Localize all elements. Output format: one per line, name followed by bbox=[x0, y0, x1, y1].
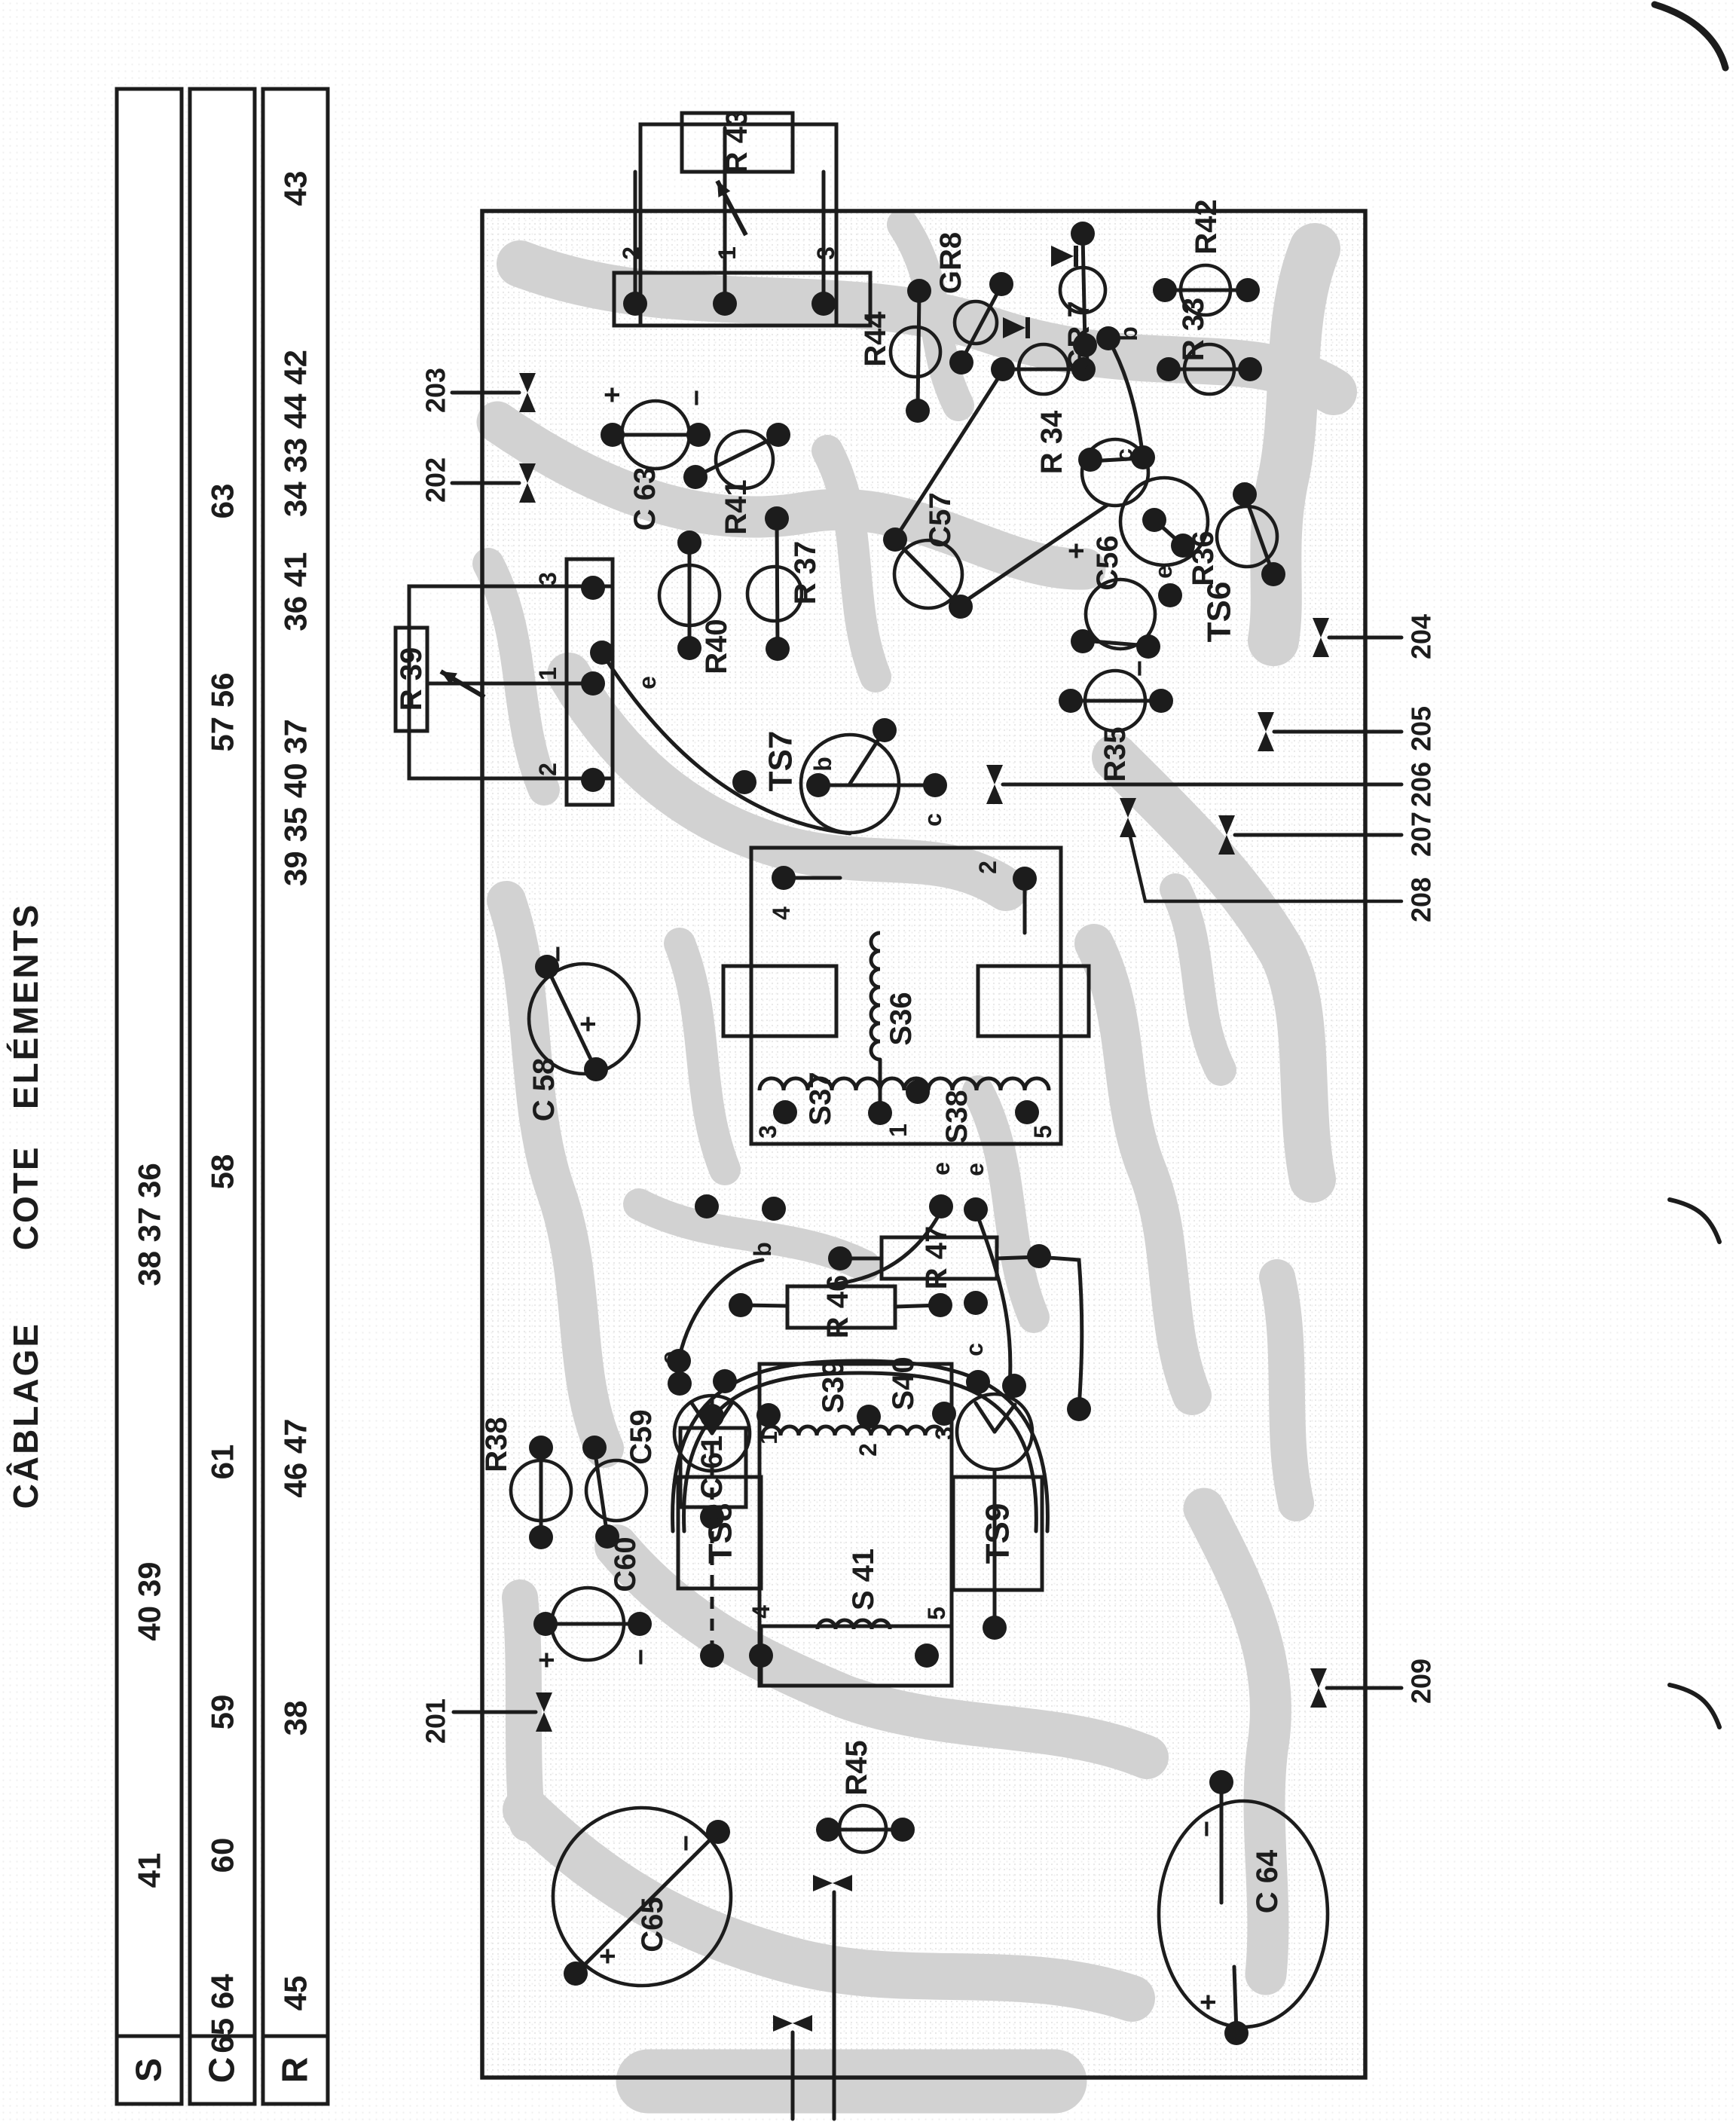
label-+-83: + bbox=[1193, 1994, 1224, 2010]
legend-C-entry-4: 59 bbox=[205, 1695, 240, 1730]
label-R41-20: R41 bbox=[720, 479, 753, 534]
label-TS7-24: TS7 bbox=[763, 731, 799, 792]
pad-19 bbox=[732, 770, 756, 794]
label-GR8-29: GR8 bbox=[934, 232, 967, 294]
pad-55 bbox=[929, 1194, 953, 1218]
label-+-78: + bbox=[592, 1948, 624, 1965]
label-4-46: 4 bbox=[768, 907, 795, 920]
curve-wire-10 bbox=[1670, 1200, 1719, 1242]
label-R36-38: R36 bbox=[1187, 530, 1220, 586]
pad-70 bbox=[749, 1643, 773, 1668]
label-b-25: b bbox=[809, 757, 836, 772]
label-202-9: 202 bbox=[420, 457, 451, 503]
pad-64 bbox=[668, 1371, 692, 1396]
label-R39-4: R 39 bbox=[395, 647, 428, 711]
pad-8 bbox=[766, 423, 790, 447]
label-S36-48: S36 bbox=[885, 992, 918, 1045]
label-3-3: 3 bbox=[812, 246, 839, 260]
pad-24 bbox=[949, 350, 973, 375]
label-204-11: 204 bbox=[1406, 614, 1437, 659]
label-c-35: c bbox=[1111, 448, 1138, 462]
pad-78 bbox=[529, 1525, 553, 1549]
label-3-51: 3 bbox=[754, 1125, 781, 1139]
label-C58-43: C 58 bbox=[527, 1058, 561, 1122]
label-R44-28: R44 bbox=[859, 311, 892, 367]
pad-57 bbox=[729, 1293, 753, 1317]
pad-71 bbox=[915, 1643, 939, 1668]
label-R46-59: R 46 bbox=[821, 1275, 854, 1339]
label-−-82: − bbox=[1191, 1821, 1223, 1837]
pad-67 bbox=[1002, 1374, 1026, 1398]
pad-10 bbox=[677, 530, 701, 555]
pad-65 bbox=[713, 1369, 737, 1393]
pad-83 bbox=[706, 1820, 730, 1844]
label-b-34: b bbox=[1115, 326, 1142, 341]
wire-14 bbox=[918, 292, 919, 408]
label-GR7-30: GR 7 bbox=[1062, 301, 1096, 371]
label-C59-63: C59 bbox=[625, 1409, 658, 1464]
pad-42 bbox=[1136, 634, 1160, 659]
pad-17 bbox=[923, 773, 947, 797]
label-209-16: 209 bbox=[1406, 1659, 1437, 1704]
pad-4 bbox=[581, 671, 605, 696]
label-−-19: − bbox=[681, 390, 713, 406]
pad-13 bbox=[766, 637, 790, 661]
pad-11 bbox=[677, 636, 701, 660]
label-R33-32: R 33 bbox=[1177, 298, 1210, 362]
pad-28 bbox=[1236, 278, 1260, 302]
pad-82 bbox=[628, 1612, 652, 1636]
pad-12 bbox=[765, 506, 789, 530]
label-e-27: e bbox=[634, 676, 661, 689]
label-3-71: 3 bbox=[931, 1426, 958, 1440]
label-−-45: − bbox=[542, 946, 574, 962]
label-e-55: e bbox=[656, 1351, 683, 1365]
pad-79 bbox=[582, 1436, 607, 1460]
pad-48 bbox=[1013, 867, 1037, 891]
legend-R-entry-1: 34 33 44 42 bbox=[278, 350, 313, 517]
pad-37 bbox=[1158, 583, 1182, 607]
label-+-44: + bbox=[573, 1016, 604, 1032]
label-R34-33: R 34 bbox=[1035, 410, 1068, 474]
label-S40-68: S40 bbox=[887, 1356, 920, 1410]
label-S37-49: S37 bbox=[804, 1072, 837, 1125]
pad-16 bbox=[806, 773, 830, 797]
label-e-56: e bbox=[928, 1162, 955, 1176]
label-R43-0: R 43 bbox=[720, 110, 753, 174]
pad-27 bbox=[1153, 278, 1177, 302]
pad-50 bbox=[868, 1101, 892, 1125]
label-203-8: 203 bbox=[420, 368, 451, 413]
legend-S-entry-2: 41 bbox=[132, 1853, 167, 1888]
pad-58 bbox=[928, 1293, 952, 1317]
pad-54 bbox=[762, 1197, 786, 1221]
pad-53 bbox=[695, 1194, 719, 1218]
pad-87 bbox=[1209, 1770, 1233, 1794]
label-R47-60: R 47 bbox=[920, 1226, 953, 1290]
pad-77 bbox=[529, 1436, 553, 1460]
legend-R-entry-2: 36 41 bbox=[278, 552, 313, 631]
label-1-2: 1 bbox=[714, 246, 741, 260]
pad-0 bbox=[623, 292, 647, 316]
label-R35-42: R35 bbox=[1099, 726, 1132, 781]
wire-24 bbox=[777, 520, 778, 647]
legend-col-C-strip bbox=[190, 89, 255, 2036]
legend-col-S-strip bbox=[117, 89, 182, 2036]
pad-86 bbox=[891, 1818, 915, 1842]
label-206-13: 206 bbox=[1406, 762, 1437, 807]
legend-S-entry-0: 38 37 36 bbox=[132, 1163, 167, 1286]
label-5-53: 5 bbox=[1029, 1125, 1056, 1139]
pad-2 bbox=[811, 292, 836, 316]
label-1-6: 1 bbox=[534, 667, 561, 680]
legend-C-entry-5: 60 bbox=[205, 1838, 240, 1873]
label-C64-81: C 64 bbox=[1251, 1849, 1284, 1913]
label-R38-62: R38 bbox=[480, 1417, 513, 1472]
label-2-7: 2 bbox=[534, 763, 561, 776]
label-S39-67: S39 bbox=[817, 1359, 850, 1413]
legend-col-C-label: C bbox=[203, 2057, 243, 2084]
label-TS8-72: TS8 bbox=[702, 1503, 739, 1564]
pad-46 bbox=[584, 1057, 608, 1081]
pad-30 bbox=[1238, 357, 1262, 381]
pad-35 bbox=[1142, 508, 1166, 532]
pad-22 bbox=[906, 399, 930, 423]
label-207-14: 207 bbox=[1406, 812, 1437, 857]
pad-6 bbox=[601, 423, 625, 447]
legend-C-entry-3: 61 bbox=[205, 1445, 240, 1480]
label-TS9-73: TS9 bbox=[980, 1503, 1016, 1564]
legend-R-entry-3: 39 35 40 37 bbox=[278, 719, 313, 886]
pad-66 bbox=[966, 1370, 990, 1394]
label-−-79: − bbox=[671, 1835, 702, 1851]
legend-R-entry-6: 45 bbox=[278, 1976, 313, 2011]
pad-18 bbox=[873, 718, 897, 742]
pad-44 bbox=[1149, 689, 1173, 713]
legend-R-entry-4: 46 47 bbox=[278, 1418, 313, 1497]
pad-81 bbox=[533, 1612, 558, 1636]
label-201-10: 201 bbox=[420, 1699, 451, 1744]
pad-25 bbox=[1071, 222, 1095, 246]
pad-59 bbox=[964, 1291, 988, 1315]
legend-R-entry-0: 43 bbox=[278, 171, 313, 206]
label-R45-80: R45 bbox=[840, 1740, 873, 1795]
pad-61 bbox=[1027, 1244, 1051, 1268]
pad-7 bbox=[686, 423, 711, 447]
label-2-47: 2 bbox=[974, 861, 1001, 874]
pad-68 bbox=[700, 1643, 724, 1668]
label-S38-50: S38 bbox=[940, 1090, 973, 1143]
label-b-54: b bbox=[749, 1242, 776, 1257]
pad-3 bbox=[581, 576, 605, 600]
label-208-15: 208 bbox=[1406, 877, 1437, 922]
pad-15 bbox=[949, 595, 973, 619]
pad-85 bbox=[816, 1818, 840, 1842]
pad-69 bbox=[983, 1616, 1007, 1640]
legend-S-entry-1: 40 39 bbox=[132, 1561, 167, 1640]
legend-C-entry-6: 65 64 bbox=[205, 1974, 240, 2053]
legend-col-R-label: R bbox=[276, 2057, 316, 2084]
pad-75 bbox=[700, 1404, 724, 1428]
label-2-70: 2 bbox=[854, 1443, 882, 1457]
pad-47 bbox=[772, 866, 796, 890]
pad-84 bbox=[564, 1961, 588, 1986]
label-e-57: e bbox=[961, 1163, 989, 1176]
label-C57-23: C57 bbox=[924, 492, 957, 547]
label-+-18: + bbox=[597, 387, 628, 403]
label-R42-31: R42 bbox=[1190, 199, 1223, 254]
label-C61-61: C 61 bbox=[695, 1436, 729, 1500]
pad-14 bbox=[883, 527, 907, 552]
pad-60 bbox=[828, 1246, 852, 1270]
label-C60-64: C60 bbox=[609, 1536, 642, 1591]
legend-C-entry-0: 63 bbox=[205, 484, 240, 519]
pad-31 bbox=[991, 357, 1015, 381]
label-+-40: + bbox=[1061, 543, 1093, 559]
label-−-66: − bbox=[625, 1649, 657, 1665]
pad-74 bbox=[932, 1402, 956, 1426]
legend-C-entry-2: 58 bbox=[205, 1154, 240, 1190]
pad-88 bbox=[1224, 2021, 1249, 2045]
pad-20 bbox=[590, 641, 614, 665]
pcb-wiring-diagram: S38 37 3640 3941C6357 565861596065 64R43… bbox=[0, 0, 1736, 2122]
pad-23 bbox=[989, 272, 1013, 296]
label-R40-21: R40 bbox=[700, 619, 733, 674]
label-e-36: e bbox=[1150, 565, 1177, 579]
pad-73 bbox=[857, 1405, 881, 1429]
pad-39 bbox=[1233, 482, 1257, 506]
label-1-69: 1 bbox=[755, 1431, 782, 1445]
label-2-1: 2 bbox=[618, 246, 645, 260]
label-205-12: 205 bbox=[1406, 706, 1437, 751]
pad-21 bbox=[907, 279, 931, 303]
pad-62 bbox=[1067, 1397, 1091, 1421]
label-1-52: 1 bbox=[885, 1124, 912, 1137]
label-c-58: c bbox=[961, 1343, 988, 1356]
label-TS6-37: TS6 bbox=[1201, 582, 1238, 643]
label-3-5: 3 bbox=[534, 572, 561, 586]
legend-col-S-label: S bbox=[130, 2058, 170, 2082]
pad-51 bbox=[906, 1080, 930, 1104]
label-5-76: 5 bbox=[923, 1607, 950, 1620]
pad-56 bbox=[964, 1197, 988, 1222]
curve-wire-11 bbox=[1670, 1685, 1719, 1727]
label-+-65: + bbox=[531, 1652, 563, 1668]
label-C65-77: C65 bbox=[636, 1897, 669, 1952]
copper-trace-15 bbox=[1277, 1277, 1296, 1503]
legend-R-entry-5: 38 bbox=[278, 1701, 313, 1736]
pad-40 bbox=[1261, 562, 1285, 586]
pad-72 bbox=[756, 1403, 781, 1427]
pad-33 bbox=[1078, 448, 1102, 472]
pad-5 bbox=[581, 768, 605, 792]
label-c-26: c bbox=[919, 813, 946, 827]
curve-wire-9 bbox=[1655, 5, 1725, 68]
legend-C-entry-1: 57 56 bbox=[205, 672, 240, 751]
scanned-sheet: CÂBLAGE COTE ELÉMENTS S38 37 3640 3941C6… bbox=[0, 0, 1736, 2122]
label-4-75: 4 bbox=[747, 1605, 775, 1619]
pad-49 bbox=[773, 1100, 797, 1124]
label-R37-22: R 37 bbox=[789, 541, 822, 605]
label-−-41: − bbox=[1124, 660, 1156, 677]
pad-43 bbox=[1059, 689, 1083, 713]
pad-9 bbox=[683, 465, 708, 489]
label-C56-39: C56 bbox=[1091, 535, 1124, 590]
label-S41-74: S 41 bbox=[847, 1549, 880, 1610]
pad-52 bbox=[1015, 1100, 1039, 1124]
label-C63-17: C 63 bbox=[628, 467, 662, 531]
pad-41 bbox=[1071, 629, 1095, 653]
pad-1 bbox=[713, 292, 737, 316]
